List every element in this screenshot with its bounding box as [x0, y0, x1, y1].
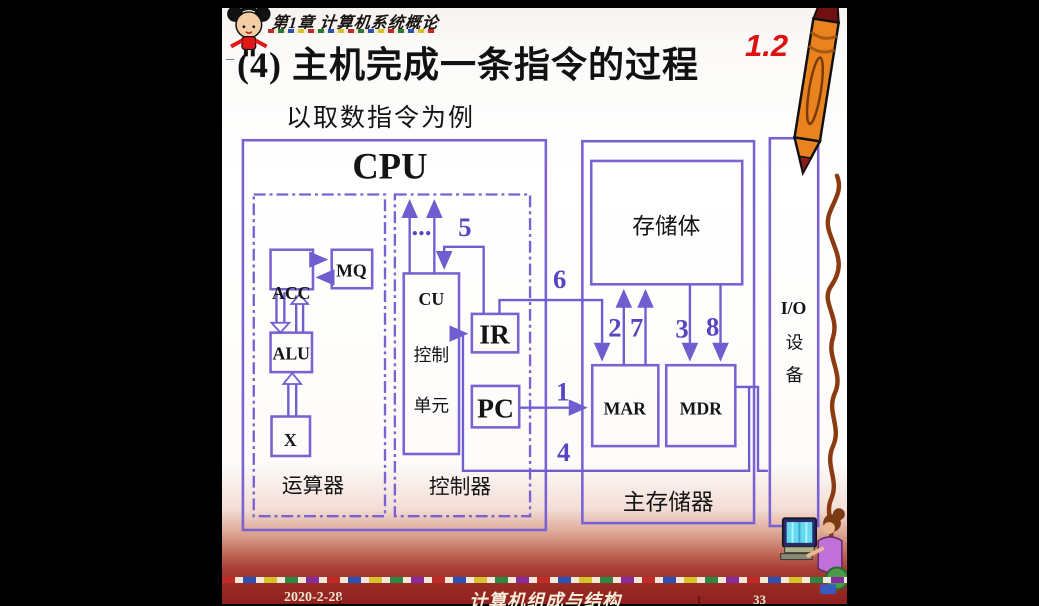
- screen: 第1章 计算机系统概论 1.2 – (4) 主机完成一条指令的过程 以取数指令为…: [0, 0, 1039, 606]
- step-7-label: 7: [630, 313, 643, 343]
- acc-label: ACC: [272, 283, 310, 303]
- io-label-line1: I/O: [781, 298, 807, 318]
- step-8-label: 8: [706, 312, 719, 342]
- arrow-x-to-alu: [283, 373, 301, 415]
- line-6-ir-to-mar: [499, 300, 602, 359]
- step-4-label: 4: [557, 437, 570, 467]
- io-label-line2: 设: [786, 332, 804, 352]
- cu-label: CU: [419, 289, 445, 309]
- step-3-label: 3: [675, 314, 688, 344]
- ir-label: IR: [479, 318, 511, 349]
- ellipsis-label: ...: [412, 211, 432, 241]
- mdr-label: MDR: [680, 399, 723, 419]
- footer-tick-left: [339, 596, 341, 606]
- x-register-label: X: [284, 430, 297, 450]
- footer-divider-dashes: [222, 577, 847, 583]
- line-memory-to-io: [749, 387, 768, 471]
- step-5-label: 5: [458, 212, 471, 242]
- cu-label-line3: 单元: [414, 396, 450, 416]
- mq-label: MQ: [336, 260, 367, 280]
- alu-unit-caption: 运算器: [282, 474, 344, 497]
- pencil-illustration: [789, 8, 841, 547]
- pc-label: PC: [477, 393, 514, 424]
- step-2-label: 2: [608, 313, 621, 343]
- line-5-ir-to-cu: [444, 247, 483, 314]
- footer-tick-right: [698, 596, 700, 606]
- step-1-label: 1: [556, 377, 569, 407]
- cpu-label: CPU: [352, 146, 427, 187]
- footer-page-number: 33: [753, 592, 766, 606]
- cu-label-line2: 控制: [414, 345, 450, 365]
- main-memory-caption: 主存储器: [623, 490, 714, 515]
- memory-bank-label: 存储体: [632, 214, 700, 239]
- alu-label: ALU: [273, 343, 311, 363]
- mascot-icon: [227, 8, 270, 56]
- io-label-line3: 备: [786, 365, 804, 385]
- diagram-canvas: CPU ACC MQ ALU X 运算器 CU 控制 单元 ... IR PC …: [222, 8, 847, 604]
- presentation-slide: 第1章 计算机系统概论 1.2 – (4) 主机完成一条指令的过程 以取数指令为…: [222, 8, 847, 604]
- pencil-scribble-trail: [827, 176, 839, 547]
- step-6-label: 6: [553, 264, 566, 294]
- footer-date: 2020-2-28: [284, 590, 342, 606]
- mar-label: MAR: [604, 399, 647, 419]
- controller-caption: 控制器: [429, 475, 491, 498]
- footer-course-title: 计算机组成与结构: [460, 587, 630, 606]
